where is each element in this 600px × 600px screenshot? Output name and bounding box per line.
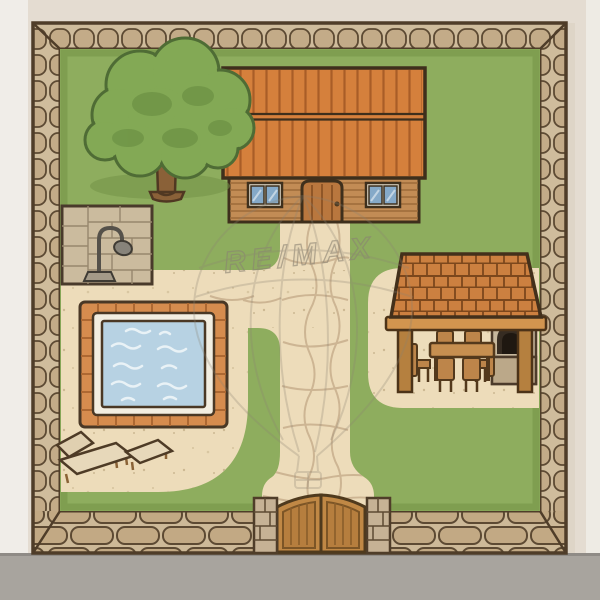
gate-doors bbox=[277, 495, 365, 552]
background-right-strip bbox=[586, 0, 600, 553]
house-window-right bbox=[366, 183, 400, 207]
backyard-illustration: RE/MAX bbox=[0, 0, 600, 600]
background-left-strip bbox=[0, 0, 28, 553]
sidewalk-road bbox=[0, 553, 600, 600]
wooden-gate bbox=[254, 495, 390, 553]
outdoor-shower bbox=[62, 206, 152, 284]
house-window-left bbox=[248, 183, 282, 207]
swimming-pool bbox=[80, 302, 227, 427]
wall-left bbox=[33, 23, 60, 511]
illustration-canvas: RE/MAX bbox=[0, 0, 600, 600]
shower-base bbox=[84, 272, 115, 281]
wall-right bbox=[540, 23, 566, 511]
wall-top bbox=[33, 23, 566, 49]
pergola-roof bbox=[380, 250, 550, 330]
